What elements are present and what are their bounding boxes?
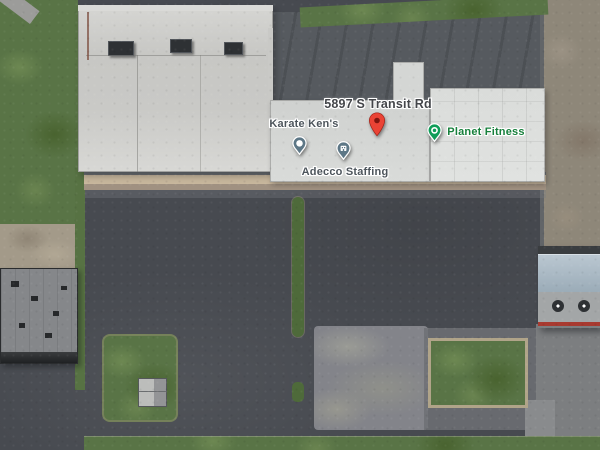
poi-pin-planet-fitness[interactable] <box>427 123 442 142</box>
roof-rust-seam <box>87 12 89 60</box>
roof-vent-circle <box>578 300 590 312</box>
roof-seam <box>200 55 201 172</box>
roof-seam <box>86 55 266 56</box>
grass-strip-south <box>84 436 600 450</box>
rooftop-unit <box>11 281 19 287</box>
blue-roof-building <box>538 246 600 328</box>
satellite-map[interactable]: 5897 S Transit Rd Karate Ken's Adecco St… <box>0 0 600 450</box>
generic-poi-pin-icon <box>292 136 307 155</box>
worn-concrete-pad <box>314 326 428 430</box>
landscaped-square <box>428 338 528 408</box>
poi-label-karate-kens[interactable]: Karate Ken's <box>269 118 338 130</box>
red-roof-trim <box>538 322 600 326</box>
bigbox-east-wall <box>268 28 273 108</box>
red-map-marker[interactable] <box>369 111 385 138</box>
entrance-median <box>292 382 304 402</box>
rooftop-unit <box>61 286 67 290</box>
address-label: 5897 S Transit Rd <box>324 97 432 111</box>
hvac-unit <box>170 39 192 53</box>
office-poi-pin-icon <box>336 141 351 160</box>
poi-pin-karate-kens[interactable] <box>292 136 307 155</box>
rooftop-unit <box>53 311 59 316</box>
poi-label-adecco-staffing[interactable]: Adecco Staffing <box>302 166 389 178</box>
red-marker-icon <box>369 111 385 138</box>
dirt-lot-east <box>544 0 600 256</box>
roof-vent-circle <box>552 300 564 312</box>
hvac-unit <box>108 41 134 56</box>
poi-pin-adecco-staffing[interactable] <box>336 141 351 160</box>
flat-roof-section <box>538 292 600 322</box>
west-building-roof <box>0 268 78 364</box>
storefront-shadow <box>1 352 77 363</box>
rooftop-unit <box>19 323 25 328</box>
roof-ridge <box>139 391 166 392</box>
rooftop-unit <box>45 333 52 338</box>
roof-seam <box>137 55 138 172</box>
vegetation-west <box>0 0 78 224</box>
bigbox-building-roof <box>78 5 273 172</box>
poi-label-planet-fitness[interactable]: Planet Fitness <box>447 126 524 138</box>
rooftop-unit <box>31 296 38 301</box>
dirt-pad-west <box>0 218 78 270</box>
blue-metal-roof <box>538 254 600 293</box>
roof-parapet <box>78 5 273 11</box>
parking-median <box>292 197 304 337</box>
kiosk-building <box>138 378 167 407</box>
fitness-poi-pin-icon <box>427 123 442 142</box>
hvac-unit <box>224 42 243 55</box>
